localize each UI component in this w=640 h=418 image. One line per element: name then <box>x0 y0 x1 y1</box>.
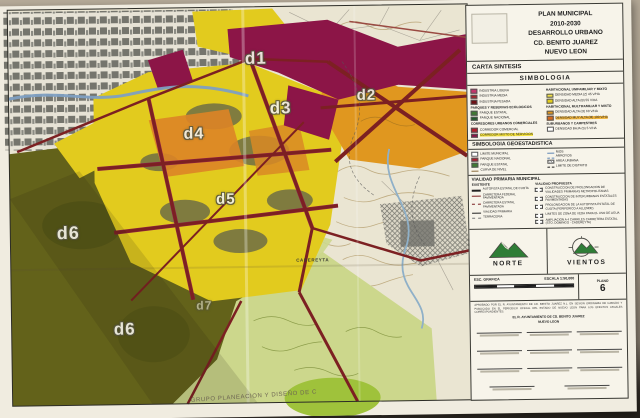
legend-item-label: DENSIDAD BAJA (S) 5 V/HA <box>555 127 596 131</box>
vialidad-propuesta: VIALIDAD PROPUESTA CONSTRUCCION DE PROLO… <box>535 180 623 228</box>
propuesta-glyph <box>535 197 543 201</box>
legend-item-label: PARQUE ESTATAL <box>480 163 508 167</box>
area-urbana-glyph <box>547 159 554 164</box>
norte-label: NORTE <box>493 260 524 267</box>
legend-item-label: PROLONGACION DE LA AUTOPISTA ESTATAL DE … <box>545 203 623 211</box>
parque-nacional-glyph <box>471 157 478 162</box>
signature-line <box>576 346 621 356</box>
propuesta-glyph <box>535 188 543 192</box>
plan-title: PLAN MUNICIPAL 2010-2030 DESARROLLO URBA… <box>511 8 620 59</box>
signature-line <box>476 347 521 357</box>
legend-item-label-highlighted: CORREDOR MIXTO DE SERVICIOS <box>480 133 533 137</box>
geo-items-left: LIMITE MUNICIPAL PARQUE NACIONAL PARQUE … <box>471 150 547 173</box>
legend-swatch <box>546 110 553 115</box>
autopista-glyph <box>472 190 481 192</box>
map-sheet: d1 d2 d3 d4 d5 d6 d6 d7 CADEREYTA GRUPO … <box>0 0 637 418</box>
legend-item: AMPLIACION A 4 CARRILES CARRETERA ESTATA… <box>536 218 624 226</box>
legend-item-label: LIMITE MUNICIPAL <box>480 152 508 156</box>
compass-row: NORTE VIENTOS <box>469 227 626 275</box>
scale-row: ESC. GRAFICA ESCALA 1:50,000 PLANO 6 <box>470 273 626 301</box>
legend-item-label: LIMITE DE DISTRITO <box>556 164 587 168</box>
legend-swatch <box>546 93 553 98</box>
legend-item: CARRETERA ESTATAL PAVIMENTADA <box>472 201 533 209</box>
legend-item-label: INDUSTRIA PESADA <box>479 100 510 104</box>
signature-grid <box>471 322 628 399</box>
legend-item-label: AUTOPISTA ESTATAL DE CUOTA <box>483 187 529 191</box>
photo-background: d1 d2 d3 d4 d5 d6 d6 d7 CADEREYTA GRUPO … <box>0 0 640 418</box>
legend-item-label: CARRETERA FEDERAL PAVIMENTADA <box>483 193 533 201</box>
vientos-label: VIENTOS <box>567 259 606 267</box>
legend-swatch <box>470 94 477 99</box>
terraceria-glyph <box>472 217 481 218</box>
carretera-estatal-glyph <box>472 204 481 205</box>
cadereyta-core <box>400 220 434 246</box>
district-label-d4: d4 <box>183 126 204 144</box>
limite-distrito-glyph <box>547 167 554 168</box>
signature-line <box>526 347 571 357</box>
title-line-5: NUEVO LEON <box>512 47 620 58</box>
legend-item: DENSIDAD ALTA (B) 55 V/HA <box>546 98 620 104</box>
legend-item-label: PARQUE NACIONAL <box>480 117 510 121</box>
legend-swatch <box>471 133 478 138</box>
plano-box: PLANO 6 <box>579 274 626 300</box>
place-label-cadereyta: CADEREYTA <box>296 257 329 262</box>
geo-items-right: RIOS ARROYOS AREA URBANA LIMITE DE DISTR… <box>547 149 623 172</box>
legend-item-label: DENSIDAD MEDIA (Z) 45 V/HA <box>555 93 600 97</box>
signature-line <box>576 328 621 338</box>
legend-item-label: LIMITES DE ZONA DE VEDA PARA EL USO DE A… <box>545 211 619 215</box>
legend-item: DENSIDAD MUY ALTA (M) 100 V/HA <box>546 115 620 121</box>
title-block: PLAN MUNICIPAL 2010-2030 DESARROLLO URBA… <box>466 4 623 62</box>
legend-item: TERRACERIA <box>472 215 533 219</box>
zoning-legend-right: HABITACIONAL UNIFAMILIAR Y MIXTO DENSIDA… <box>546 86 622 138</box>
legend-swatch <box>470 100 477 105</box>
signature-line <box>477 365 522 375</box>
parque-estatal-glyph <box>471 163 478 168</box>
legend-item-label: INDUSTRIA MEDIA <box>479 94 507 98</box>
arroyos-glyph <box>547 157 554 158</box>
plano-number: 6 <box>600 283 606 294</box>
title-logo-box <box>471 13 507 43</box>
district-label-d6-north: d6 <box>57 223 80 244</box>
legend-swatch <box>546 127 553 132</box>
district-label-d7: d7 <box>196 298 212 312</box>
legend-item: CARRETERA FEDERAL PAVIMENTADA <box>472 193 533 201</box>
signature-line <box>526 329 571 339</box>
legend-swatch <box>470 89 477 94</box>
legend-item-label: DENSIDAD ALTA (B) 55 V/HA <box>555 99 597 103</box>
zoning-legend-left: INDUSTRIA LIGERA INDUSTRIA MEDIA INDUSTR… <box>470 87 546 139</box>
district-label-d6-south: d6 <box>114 319 136 339</box>
legend-item-label: CURVA DE NIVEL <box>480 168 506 172</box>
legend-item-label: PARQUE ESTATAL <box>480 111 508 115</box>
winds-compass-icon <box>559 236 613 259</box>
vialidad-section: VIALIDAD PRIMARIA MUNICIPAL EXISTENTE AU… <box>469 173 626 230</box>
vientos-box: VIENTOS <box>547 228 626 274</box>
geo-symbology-items: LIMITE MUNICIPAL PARQUE NACIONAL PARQUE … <box>468 148 624 175</box>
legend-item-label: VIALIDAD PRIMARIA <box>483 210 512 214</box>
legend-swatch <box>546 116 553 121</box>
legend-item: CURVA DE NIVEL <box>471 167 547 171</box>
legend-item-label: DENSIDAD ALTA (O) 60 V/HA <box>555 110 598 114</box>
district-label-d1: d1 <box>245 49 267 69</box>
legend-item: INDUSTRIA PESADA <box>470 99 544 105</box>
north-mountain-icon <box>481 237 535 260</box>
legend-item: PROLONGACION DE LA AUTOPISTA ESTATAL DE … <box>535 203 623 211</box>
legend-item-label: CARRETERA ESTATAL PAVIMENTADA <box>483 201 533 209</box>
district-label-d5: d5 <box>216 191 236 208</box>
legend-item-label: PARQUE NACIONAL <box>480 157 510 161</box>
district-label-d2: d2 <box>357 87 377 104</box>
legend-item-label: CORREDOR COMERCIAL <box>480 128 518 132</box>
legend-panel: PLAN MUNICIPAL 2010-2030 DESARROLLO URBA… <box>465 3 629 401</box>
legend-item-label-highlighted: DENSIDAD MUY ALTA (M) 100 V/HA <box>555 115 608 119</box>
signature-line <box>476 329 521 339</box>
scale-box: ESC. GRAFICA ESCALA 1:50,000 <box>470 275 580 302</box>
signature-line <box>489 383 534 393</box>
legend-item-label: INDUSTRIA LIGERA <box>479 89 509 93</box>
legend-item: VIALIDAD PRIMARIA <box>472 210 533 214</box>
scale-label-1: ESC. GRAFICA <box>474 278 500 282</box>
legend-item-label: TERRACERIA <box>483 215 502 219</box>
rios-glyph <box>547 152 554 154</box>
vialidad-existente: EXISTENTE AUTOPISTA ESTATAL DE CUOTA CAR… <box>472 181 536 228</box>
signature-line <box>577 364 622 374</box>
propuesta-glyph <box>535 213 543 217</box>
scale-label-2: ESCALA 1:50,000 <box>544 277 574 281</box>
signature-line <box>564 382 609 392</box>
curva-nivel-glyph <box>471 170 478 171</box>
propuesta-glyph <box>536 220 544 224</box>
legend-swatch <box>546 99 553 104</box>
signature-line <box>527 365 572 375</box>
zoning-legend: INDUSTRIA LIGERA INDUSTRIA MEDIA INDUSTR… <box>467 84 624 140</box>
legend-item: CORREDOR MIXTO DE SERVICIOS <box>471 132 545 138</box>
scale-bar <box>474 284 574 289</box>
legend-item-label: AMPLIACION A 4 CARRILES CARRETERA ESTATA… <box>546 218 624 226</box>
propuesta-glyph <box>535 205 543 209</box>
legend-swatch <box>471 111 478 116</box>
legend-swatch <box>471 116 478 121</box>
norte-box: NORTE <box>469 229 548 275</box>
vialidad-primaria-glyph <box>472 212 481 213</box>
legend-item: LIMITE DE DISTRITO <box>547 164 623 168</box>
legend-item: DENSIDAD BAJA (S) 5 V/HA <box>546 126 620 132</box>
limite-municipal-glyph <box>471 152 478 157</box>
carretera-federal-glyph <box>472 196 481 197</box>
legend-swatch <box>471 128 478 133</box>
district-label-d3: d3 <box>270 98 292 118</box>
